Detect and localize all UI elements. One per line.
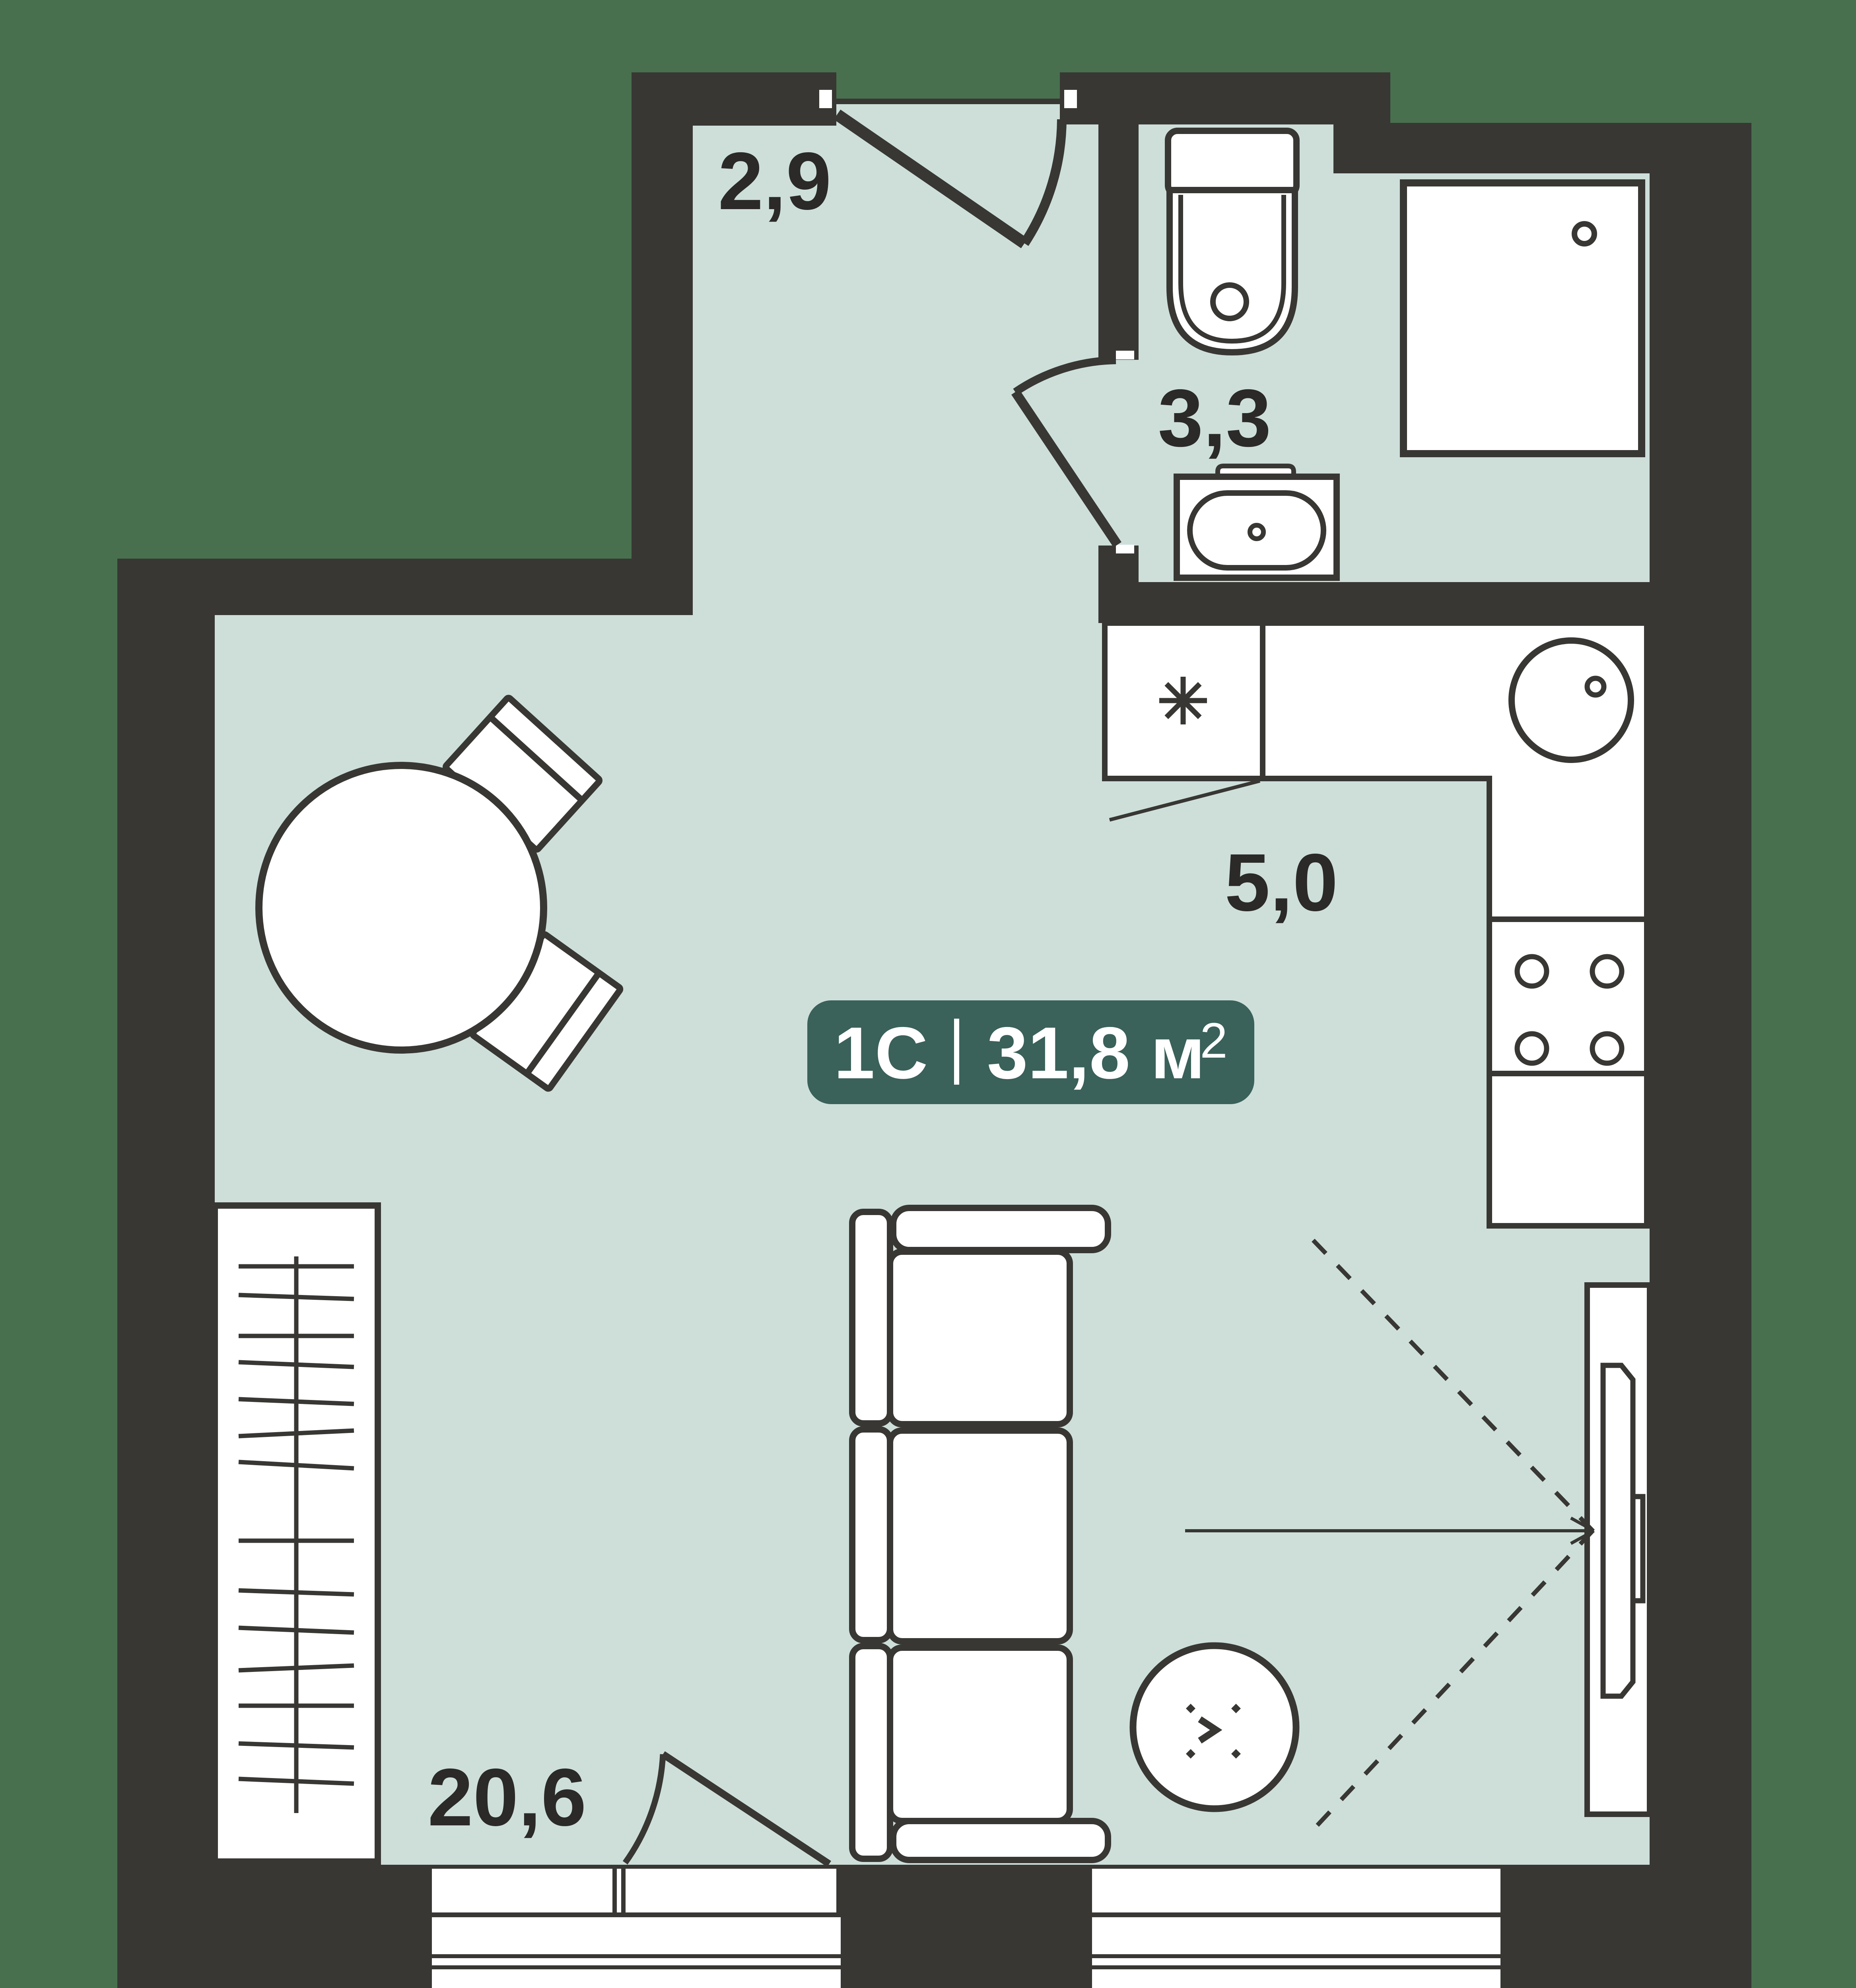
svg-text:1C: 1C bbox=[834, 1012, 928, 1094]
svg-text:2: 2 bbox=[1200, 1013, 1228, 1068]
svg-text:20,6: 20,6 bbox=[428, 1752, 587, 1843]
svg-text:31,8 м: 31,8 м bbox=[987, 1012, 1205, 1094]
svg-text:3,3: 3,3 bbox=[1158, 373, 1271, 464]
svg-text:5,0: 5,0 bbox=[1225, 837, 1338, 928]
svg-text:2,9: 2,9 bbox=[718, 136, 832, 227]
